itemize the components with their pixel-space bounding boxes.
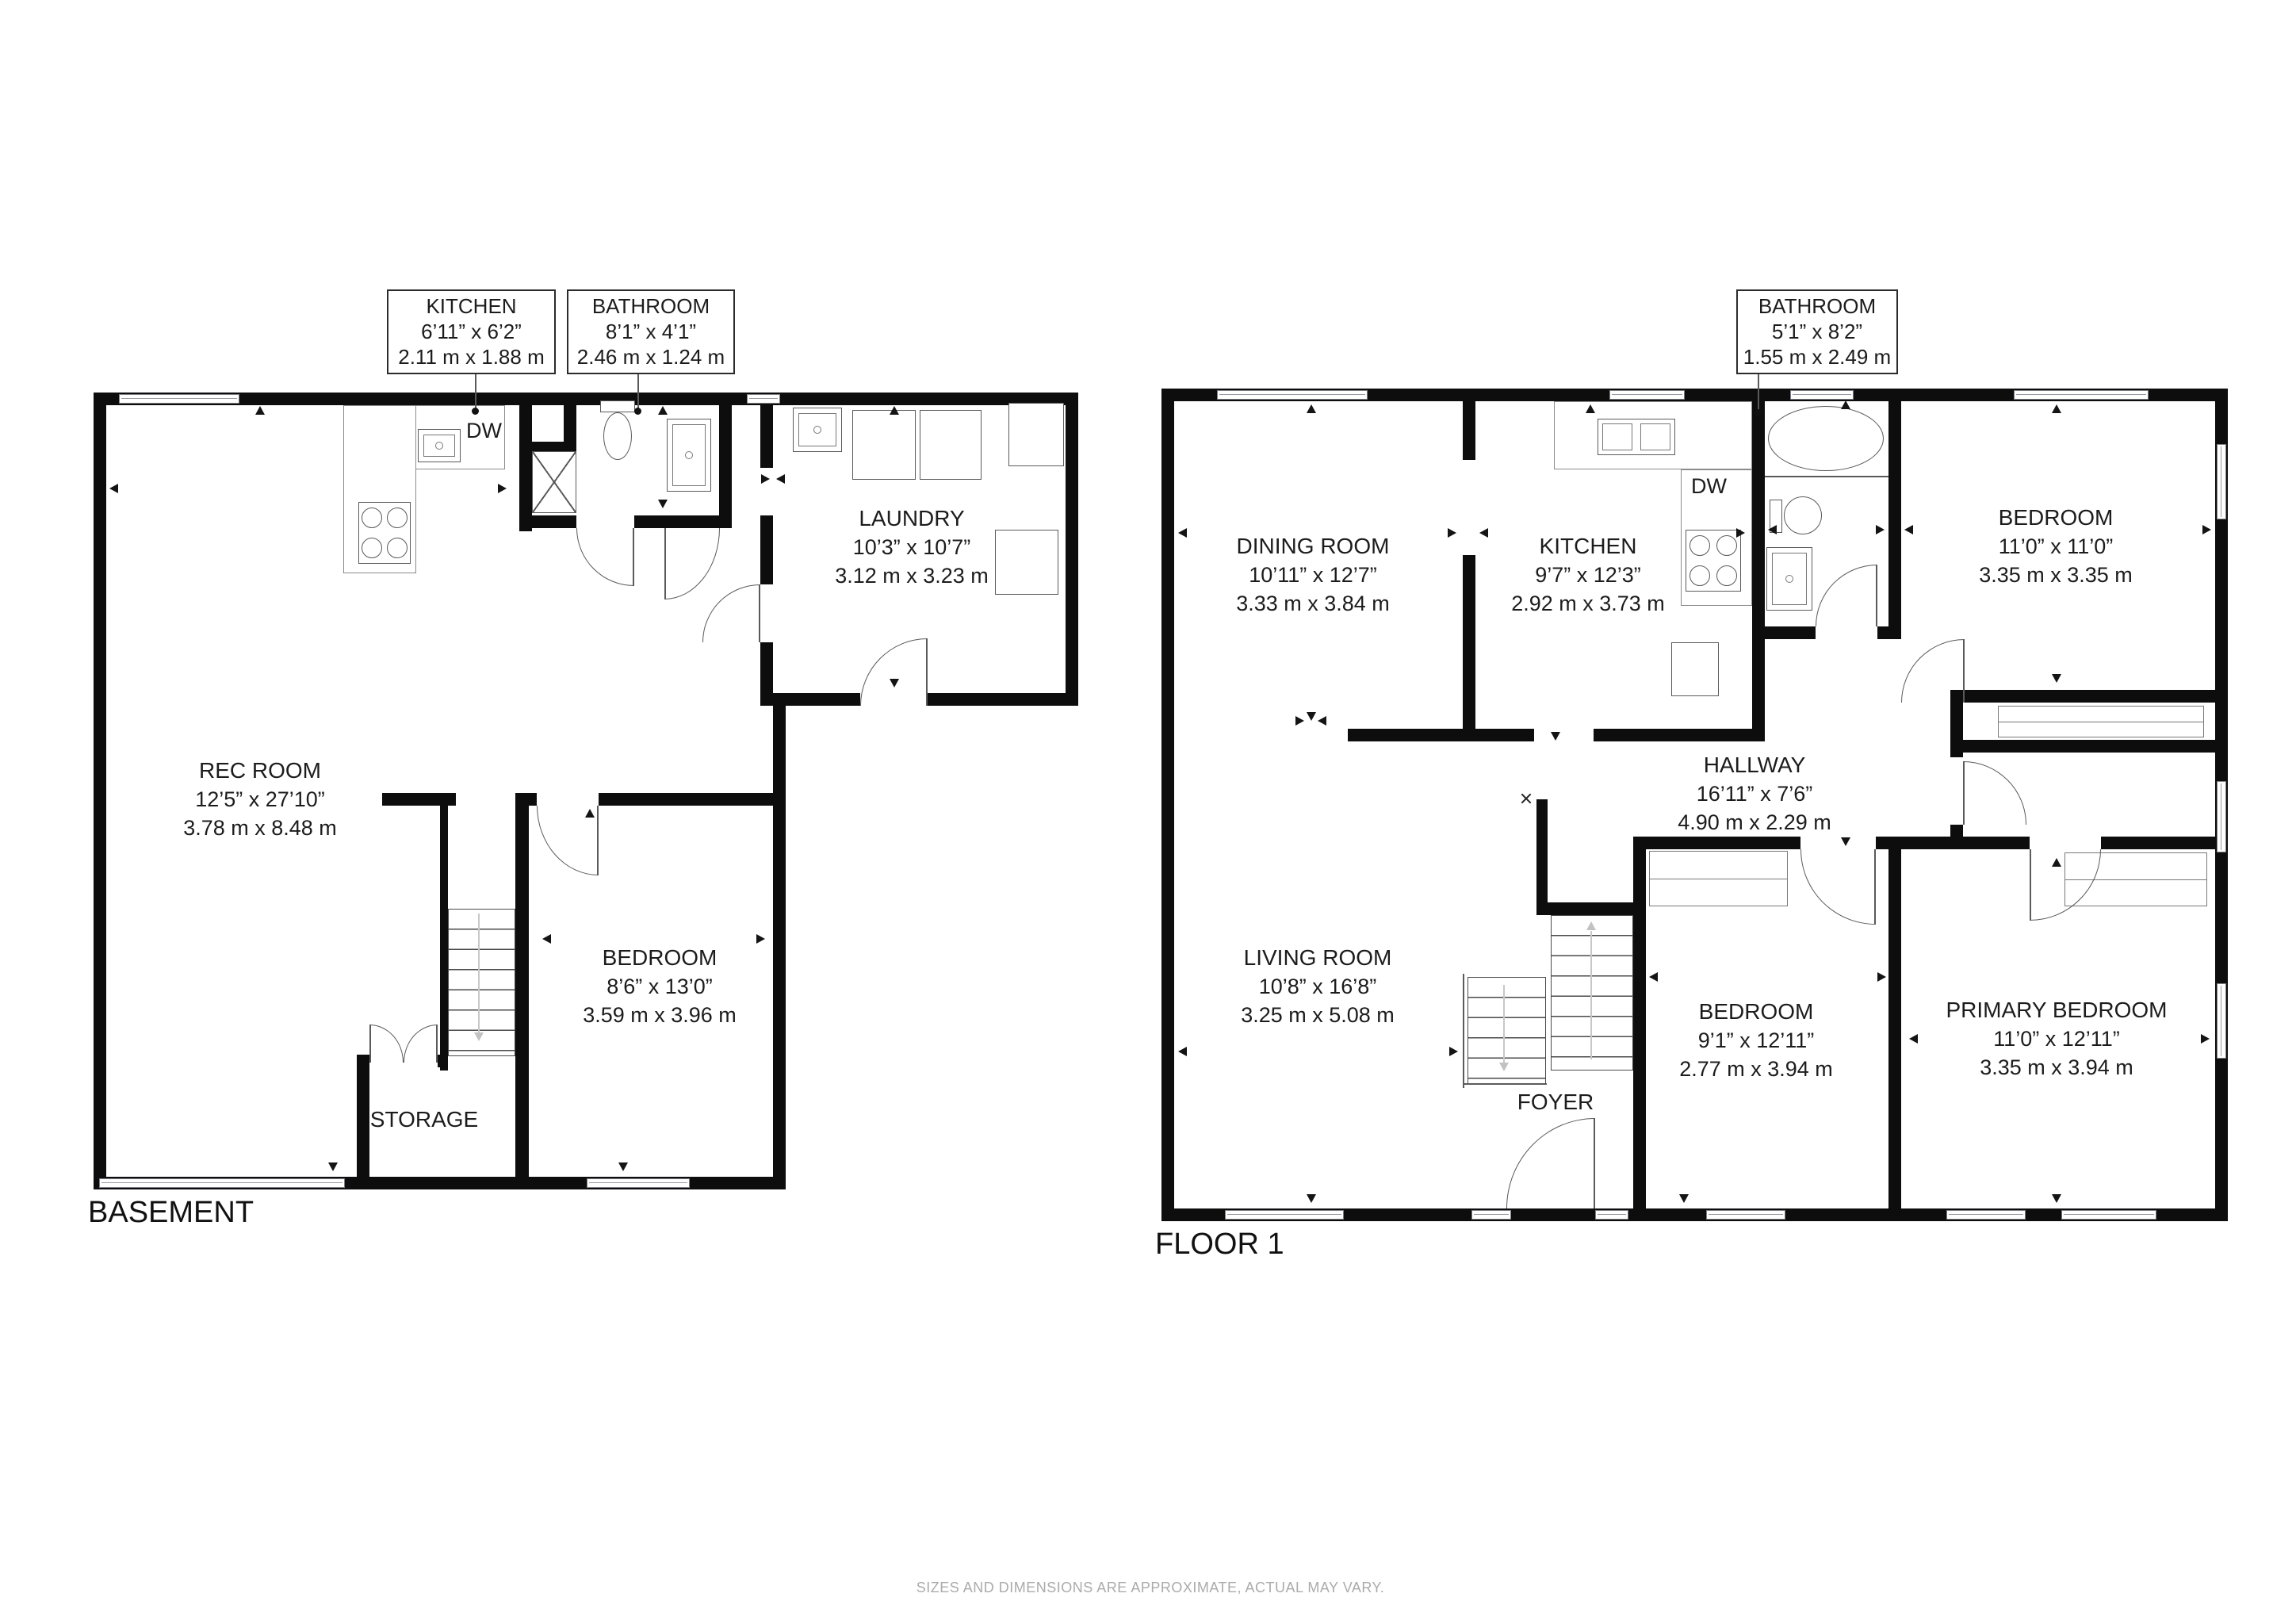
door-leaf xyxy=(664,528,666,599)
door-leaf xyxy=(1876,565,1877,626)
door-leaf xyxy=(1963,639,1965,703)
door-arc xyxy=(860,638,928,706)
room-imperial: 10’8” x 16’8” xyxy=(1241,972,1395,1001)
room-name: BEDROOM xyxy=(1979,504,2133,532)
dimension-arrow xyxy=(2052,1194,2061,1203)
wall xyxy=(519,515,576,528)
room-imperial: 8’6” x 13’0” xyxy=(583,972,737,1001)
room-metric: 3.12 m x 3.23 m xyxy=(835,561,989,590)
door-arc xyxy=(1901,639,1965,703)
dimension-arrow xyxy=(756,934,765,944)
door-leaf xyxy=(369,1025,371,1063)
door-arc xyxy=(576,528,634,586)
window xyxy=(2217,983,2226,1059)
dimension-arrow xyxy=(1178,1047,1187,1056)
door-arc xyxy=(1963,761,2026,825)
wall xyxy=(719,393,732,528)
room-label-living-room: LIVING ROOM 10’8” x 16’8” 3.25 m x 5.08 … xyxy=(1241,944,1395,1029)
wall xyxy=(1348,729,1534,741)
door-arc xyxy=(664,528,720,599)
room-label-primary-bedroom: PRIMARY BEDROOM 11’0” x 12’11” 3.35 m x … xyxy=(1946,996,2167,1082)
wall xyxy=(760,515,773,584)
dimension-arrow xyxy=(658,406,668,415)
callout-room-name: BATHROOM xyxy=(1738,293,1896,319)
vanity-sink xyxy=(1766,547,1812,611)
dishwasher-label: DW xyxy=(466,419,502,443)
wall xyxy=(1463,555,1475,741)
dimension-arrow xyxy=(2052,858,2061,867)
room-metric: 4.90 m x 2.29 m xyxy=(1678,808,1831,837)
wall xyxy=(515,793,529,1182)
stair-rail xyxy=(1463,974,1464,1088)
dimension-arrow xyxy=(1649,972,1658,982)
window xyxy=(1225,1210,1344,1220)
room-label-dining-room: DINING ROOM 10’11” x 12’7” 3.33 m x 3.84… xyxy=(1236,532,1390,618)
floor1-title: FLOOR 1 xyxy=(1155,1228,1284,1262)
dimension-arrow xyxy=(1909,1034,1918,1044)
front-door-arc xyxy=(1506,1118,1595,1208)
disclaimer-text: SIZES AND DIMENSIONS ARE APPROXIMATE, AC… xyxy=(916,1580,1385,1596)
callout-basement-bathroom: BATHROOM 8’1” x 4’1” 2.46 m x 1.24 m xyxy=(567,289,735,374)
wall xyxy=(928,693,1078,706)
room-label-bedroom-top: BEDROOM 11’0” x 11’0” 3.35 m x 3.35 m xyxy=(1979,504,2133,589)
dimension-arrow xyxy=(328,1162,338,1171)
wall xyxy=(1888,849,1901,1208)
room-label-foyer: FOYER xyxy=(1517,1088,1594,1116)
dimension-arrow xyxy=(1679,1194,1689,1203)
wall xyxy=(1536,799,1548,915)
stair-rail xyxy=(1464,1083,1547,1085)
callout-metric: 2.46 m x 1.24 m xyxy=(568,344,733,370)
room-label-laundry: LAUNDRY 10’3” x 10’7” 3.12 m x 3.23 m xyxy=(835,504,989,590)
wall xyxy=(1594,729,1765,741)
burner xyxy=(387,507,408,528)
kitchen-sink xyxy=(418,429,461,462)
vanity-sink xyxy=(667,419,711,492)
closet xyxy=(1649,851,1788,906)
window xyxy=(1217,390,1368,400)
wall xyxy=(564,400,576,445)
sink-basin xyxy=(1602,423,1632,450)
window xyxy=(2217,444,2226,519)
room-name: BEDROOM xyxy=(1679,998,1833,1026)
stair-guide-arrow xyxy=(1586,921,1596,930)
dimension-arrow xyxy=(1904,525,1913,534)
washer xyxy=(852,410,916,480)
door-arc xyxy=(1816,565,1877,626)
room-name: FOYER xyxy=(1517,1088,1594,1116)
wall xyxy=(1752,389,1765,741)
window xyxy=(1790,390,1854,400)
dimension-arrow xyxy=(1551,732,1560,741)
room-metric: 3.25 m x 5.08 m xyxy=(1241,1001,1395,1029)
toilet-bowl xyxy=(1784,496,1822,534)
leader-dot xyxy=(634,408,641,415)
wall xyxy=(1463,389,1475,460)
dimension-arrow xyxy=(1318,716,1326,726)
door-arc xyxy=(369,1025,404,1063)
dimension-arrow xyxy=(658,500,668,508)
dimension-arrow xyxy=(1178,528,1187,538)
callout-imperial: 8’1” x 4’1” xyxy=(568,319,733,344)
dimension-arrow xyxy=(2052,404,2061,413)
dimension-arrow xyxy=(1448,528,1456,538)
dishwasher-label: DW xyxy=(1691,474,1727,499)
laundry-sink xyxy=(793,408,842,452)
room-name: LIVING ROOM xyxy=(1241,944,1395,972)
cabinet xyxy=(1008,403,1064,466)
room-metric: 3.59 m x 3.96 m xyxy=(583,1001,737,1029)
wall xyxy=(599,793,773,806)
room-metric: 2.92 m x 3.73 m xyxy=(1511,589,1665,618)
room-metric: 3.78 m x 8.48 m xyxy=(183,814,337,842)
burner xyxy=(1689,535,1710,556)
stair-guide xyxy=(1503,985,1505,1064)
room-metric: 3.35 m x 3.35 m xyxy=(1979,561,2133,589)
storage-box xyxy=(995,530,1058,595)
dimension-arrow xyxy=(2201,1034,2210,1044)
room-name: KITCHEN xyxy=(1511,532,1665,561)
wall xyxy=(94,393,1078,405)
door-leaf xyxy=(436,1025,438,1063)
door-leaf xyxy=(1874,849,1876,925)
room-name: DINING ROOM xyxy=(1236,532,1390,561)
callout-room-name: BATHROOM xyxy=(568,293,733,319)
toilet-tank xyxy=(600,400,635,412)
dimension-arrow xyxy=(1295,716,1304,726)
window xyxy=(747,394,780,404)
dimension-arrow xyxy=(1307,1194,1316,1203)
door-leaf xyxy=(597,806,599,875)
room-imperial: 9’1” x 12’11” xyxy=(1679,1026,1833,1055)
room-imperial: 11’0” x 11’0” xyxy=(1979,532,2133,561)
room-imperial: 10’3” x 10’7” xyxy=(835,533,989,561)
callout-basement-kitchen: KITCHEN 6’11” x 6’2” 2.11 m x 1.88 m xyxy=(387,289,556,374)
leader-line xyxy=(475,371,476,411)
wall xyxy=(2101,837,2215,849)
burner xyxy=(387,538,408,558)
door-leaf xyxy=(1594,1118,1595,1208)
room-name: HALLWAY xyxy=(1678,751,1831,779)
room-name: LAUNDRY xyxy=(835,504,989,533)
dimension-arrow xyxy=(890,679,899,688)
dimension-arrow xyxy=(1736,528,1745,538)
door-arc xyxy=(404,1025,438,1063)
dimension-arrow xyxy=(1841,837,1850,846)
leader-dot xyxy=(1755,409,1762,416)
stove xyxy=(358,502,411,564)
wall xyxy=(760,393,773,468)
burner xyxy=(362,538,382,558)
room-name: PRIMARY BEDROOM xyxy=(1946,996,2167,1025)
room-imperial: 10’11” x 12’7” xyxy=(1236,561,1390,589)
callout-imperial: 5’1” x 8’2” xyxy=(1738,319,1896,344)
room-label-floor1-bedroom: BEDROOM 9’1” x 12’11” 2.77 m x 3.94 m xyxy=(1679,998,1833,1083)
wall xyxy=(1963,740,2215,753)
stairs xyxy=(1551,915,1633,1071)
stair-guide-arrow xyxy=(1499,1063,1509,1071)
room-label-hallway: HALLWAY 16’11” x 7’6” 4.90 m x 2.29 m xyxy=(1678,751,1831,837)
bathtub xyxy=(1768,406,1884,471)
door-leaf xyxy=(926,638,928,706)
callout-room-name: KITCHEN xyxy=(388,293,554,319)
burner xyxy=(1689,565,1710,586)
callout-imperial: 6’11” x 6’2” xyxy=(388,319,554,344)
dimension-arrow xyxy=(1841,400,1850,409)
wall xyxy=(1633,837,1646,1208)
dimension-arrow xyxy=(2052,674,2061,683)
x-marker xyxy=(1521,793,1532,804)
wall xyxy=(773,693,786,1189)
door-arc xyxy=(702,584,760,642)
door-arc xyxy=(1800,849,1876,925)
dimension-arrow xyxy=(890,406,899,415)
door-leaf xyxy=(2030,849,2031,921)
stair-guide-arrow xyxy=(474,1032,484,1041)
wall xyxy=(440,793,448,1071)
wall xyxy=(1066,393,1078,706)
wall xyxy=(438,1055,448,1067)
dimension-arrow xyxy=(618,1162,628,1171)
room-imperial: 16’11” x 7’6” xyxy=(1678,779,1831,808)
wall xyxy=(773,693,860,706)
window xyxy=(1706,1210,1785,1220)
window xyxy=(2014,390,2149,400)
wall xyxy=(1888,389,1901,639)
window xyxy=(1609,390,1685,400)
dimension-arrow xyxy=(1479,528,1488,538)
wall xyxy=(519,393,532,531)
room-label-rec-room: REC ROOM 12’5” x 27’10” 3.78 m x 8.48 m xyxy=(183,756,337,842)
closet xyxy=(1998,706,2204,737)
room-metric: 3.33 m x 3.84 m xyxy=(1236,589,1390,618)
window xyxy=(119,394,239,404)
leader-line xyxy=(1758,371,1759,412)
leader-dot xyxy=(472,408,479,415)
room-imperial: 9’7” x 12’3” xyxy=(1511,561,1665,589)
dimension-arrow xyxy=(498,484,507,493)
window xyxy=(1595,1210,1628,1220)
room-name: STORAGE xyxy=(370,1105,478,1134)
room-name: REC ROOM xyxy=(183,756,337,785)
wall xyxy=(1161,389,1174,1221)
callout-floor1-bathroom: BATHROOM 5’1” x 8’2” 1.55 m x 2.49 m xyxy=(1736,289,1898,374)
leader-line xyxy=(637,371,639,411)
dimension-arrow xyxy=(1307,404,1316,413)
double-sink xyxy=(1598,419,1675,455)
room-name: BEDROOM xyxy=(583,944,737,972)
door-leaf xyxy=(1963,761,1965,825)
wall xyxy=(760,642,773,706)
door-arc xyxy=(2030,849,2101,921)
room-imperial: 12’5” x 27’10” xyxy=(183,785,337,814)
window xyxy=(1946,1210,2026,1220)
dimension-arrow xyxy=(2202,525,2211,534)
burner xyxy=(1716,535,1737,556)
dimension-arrow xyxy=(109,484,118,493)
room-metric: 3.35 m x 3.94 m xyxy=(1946,1053,2167,1082)
window xyxy=(99,1178,345,1188)
room-label-floor1-kitchen: KITCHEN 9’7” x 12’3” 2.92 m x 3.73 m xyxy=(1511,532,1665,618)
floorplan-page: { "footer": { "disclaimer": "SIZES AND D… xyxy=(0,0,2296,1624)
window xyxy=(2061,1210,2156,1220)
wall xyxy=(357,1055,369,1189)
dimension-arrow xyxy=(1307,712,1316,721)
wall xyxy=(94,393,106,1189)
toilet-bowl xyxy=(603,412,632,460)
room-label-basement-bedroom: BEDROOM 8’6” x 13’0” 3.59 m x 3.96 m xyxy=(583,944,737,1029)
room-imperial: 11’0” x 12’11” xyxy=(1946,1025,2167,1053)
wall xyxy=(1646,837,1800,849)
callout-metric: 2.11 m x 1.88 m xyxy=(388,344,554,370)
shower xyxy=(532,451,576,513)
dimension-arrow xyxy=(1876,525,1885,534)
door-leaf xyxy=(633,528,634,586)
wall xyxy=(1963,690,2215,703)
basement-title: BASEMENT xyxy=(88,1196,254,1230)
dryer xyxy=(920,410,982,480)
tub-divider-line xyxy=(1765,476,1888,477)
wall xyxy=(634,515,732,528)
burner xyxy=(362,507,382,528)
dimension-arrow xyxy=(585,809,595,818)
room-metric: 2.77 m x 3.94 m xyxy=(1679,1055,1833,1083)
wall xyxy=(1536,902,1646,915)
door-leaf xyxy=(759,584,760,642)
dimension-arrow xyxy=(776,474,785,484)
dimension-arrow xyxy=(1768,525,1777,534)
dimension-arrow xyxy=(542,934,551,944)
dimension-arrow xyxy=(761,474,770,484)
wall xyxy=(1765,626,1816,639)
dimension-arrow xyxy=(1586,404,1595,413)
window xyxy=(587,1178,690,1188)
dimension-arrow xyxy=(1449,1047,1458,1056)
stair-guide xyxy=(1590,931,1592,1059)
room-label-storage: STORAGE xyxy=(370,1105,478,1134)
fridge xyxy=(1671,642,1719,696)
burner xyxy=(1716,565,1737,586)
window xyxy=(1471,1210,1511,1220)
callout-metric: 1.55 m x 2.49 m xyxy=(1738,344,1896,370)
dimension-arrow xyxy=(1877,972,1886,982)
wall xyxy=(1876,837,2030,849)
window xyxy=(2217,781,2226,852)
stove xyxy=(1686,530,1741,592)
dimension-arrow xyxy=(255,406,265,415)
sink-basin xyxy=(1640,423,1670,450)
stair-guide xyxy=(478,913,480,1034)
